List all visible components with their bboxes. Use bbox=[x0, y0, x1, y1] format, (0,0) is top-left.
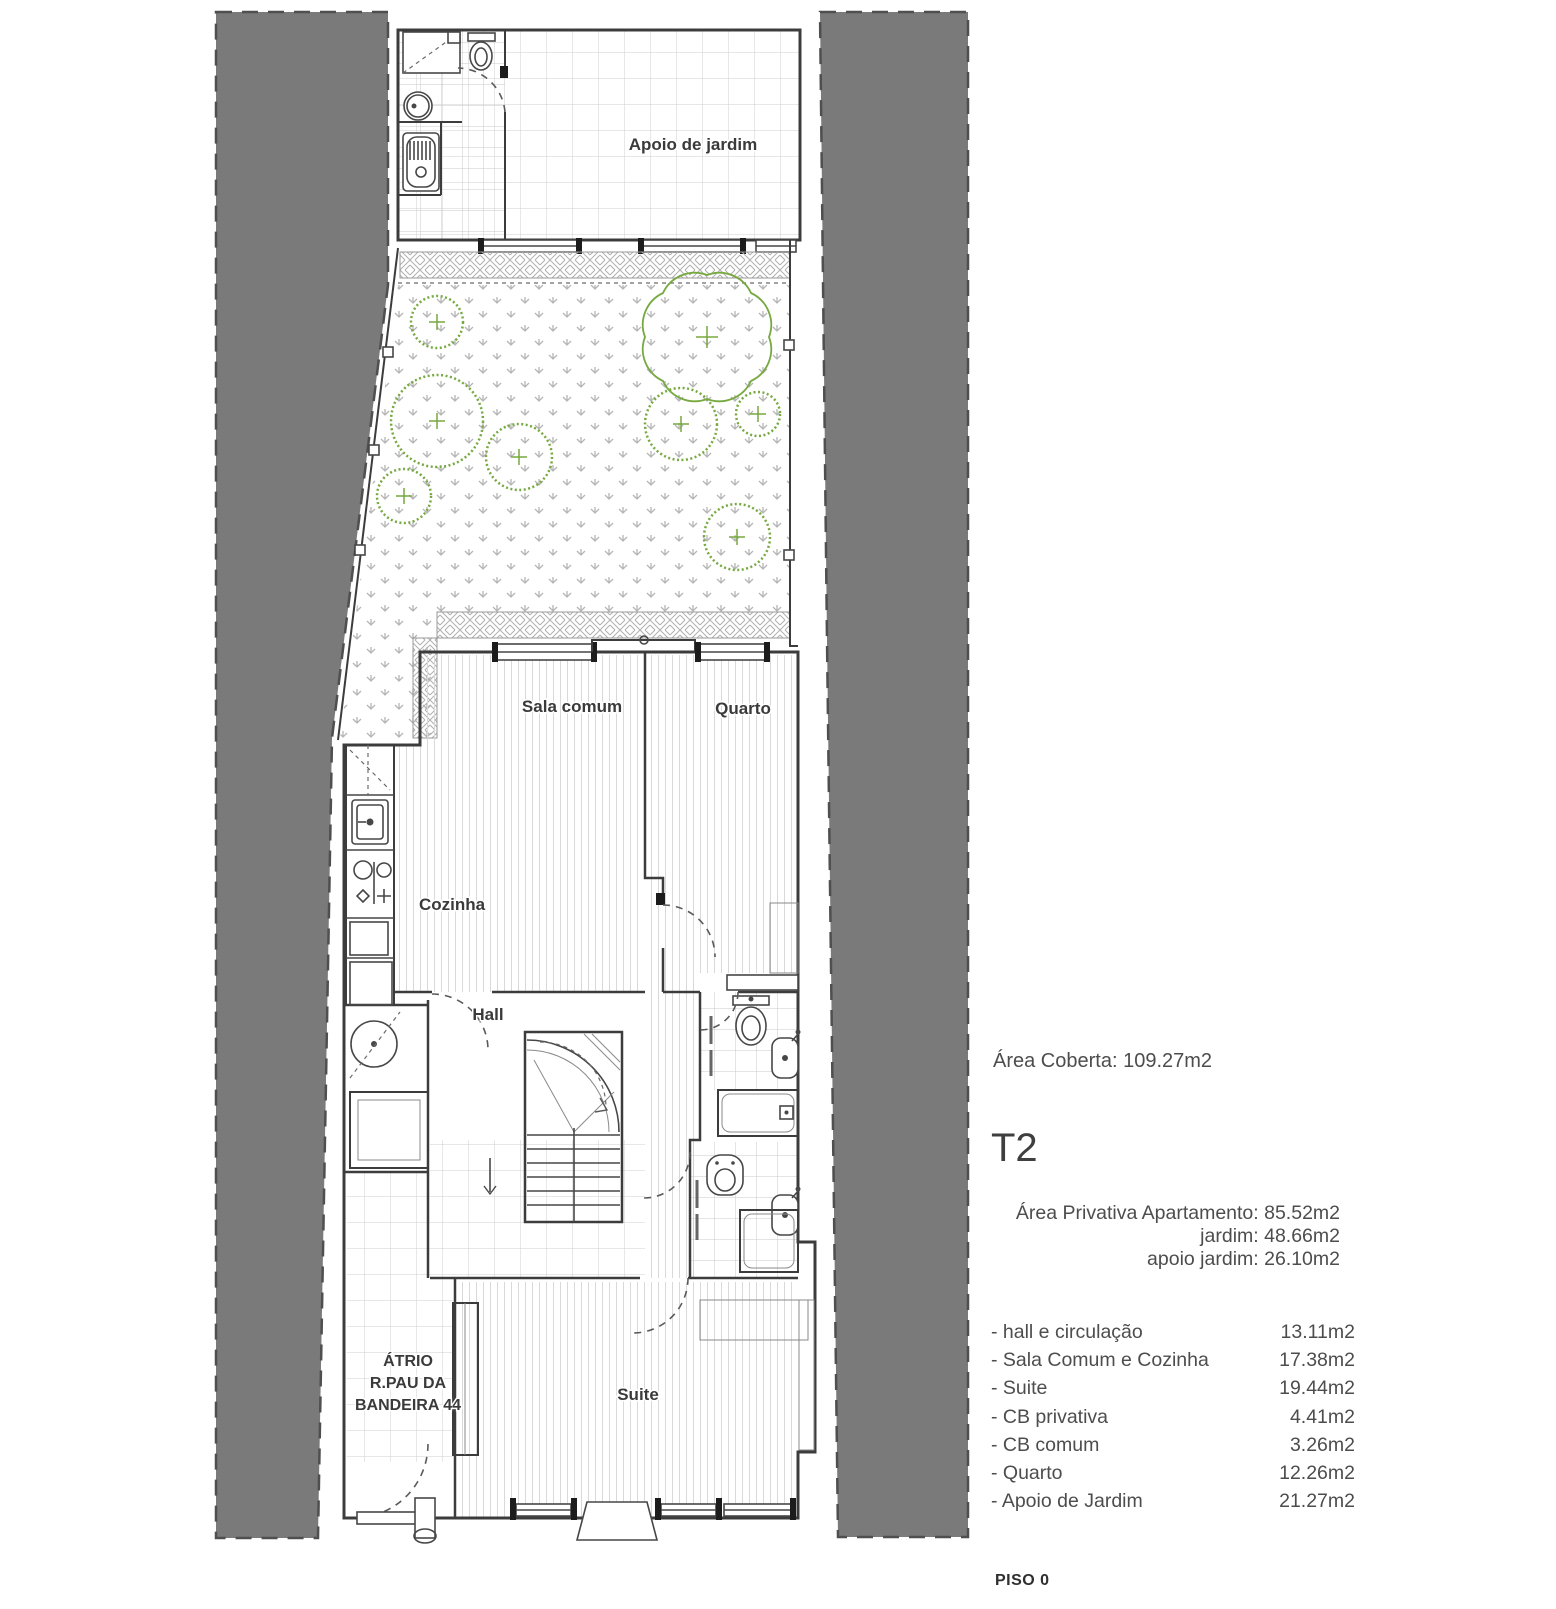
label-sala-comum: Sala comum bbox=[522, 697, 622, 716]
room-area-row: - Apoio de Jardim 21.27m2 bbox=[991, 1487, 1355, 1515]
room-area-row: - CB privativa 4.41m2 bbox=[991, 1403, 1355, 1431]
private-area-line: jardim: 48.66m2 bbox=[1016, 1225, 1340, 1248]
unit-type-title: T2 bbox=[991, 1128, 1038, 1168]
neighbor-building-right bbox=[820, 12, 968, 1537]
storage-block bbox=[350, 1092, 428, 1168]
floor-plan-page: Apoio de jardim Sala comum Quarto Cozinh… bbox=[0, 0, 1556, 1609]
sink-icon bbox=[352, 800, 388, 844]
room-area-row: - Quarto 12.26m2 bbox=[991, 1459, 1355, 1487]
washbasin-icon bbox=[404, 92, 432, 120]
toilet-icon bbox=[733, 996, 769, 1045]
room-label: - Apoio de Jardim bbox=[991, 1487, 1143, 1515]
room-label: - hall e circulação bbox=[991, 1318, 1143, 1346]
label-atrio: ÁTRIO bbox=[383, 1351, 433, 1370]
label-cozinha: Cozinha bbox=[419, 895, 486, 914]
bathtub-icon bbox=[403, 133, 439, 191]
shower-icon bbox=[403, 32, 460, 73]
entrance-pillar bbox=[414, 1498, 436, 1543]
room-area-row: - Suite 19.44m2 bbox=[991, 1374, 1355, 1402]
label-suite: Suite bbox=[617, 1385, 659, 1404]
label-apoio-de-jardim: Apoio de jardim bbox=[629, 135, 757, 154]
label-quarto: Quarto bbox=[715, 699, 771, 718]
room-label: - CB privativa bbox=[991, 1403, 1108, 1431]
room-area-value: 21.27m2 bbox=[1279, 1487, 1355, 1515]
room-label: - Sala Comum e Cozinha bbox=[991, 1346, 1209, 1374]
covered-area-text: Área Coberta: 109.27m2 bbox=[993, 1050, 1212, 1073]
window bbox=[492, 642, 597, 662]
label-atrio-number: BANDEIRA 44 bbox=[355, 1397, 461, 1414]
stove-icon bbox=[354, 861, 391, 904]
window bbox=[695, 642, 770, 662]
room-area-row: - CB comum 3.26m2 bbox=[991, 1431, 1355, 1459]
room-label: - Suite bbox=[991, 1374, 1047, 1402]
floor-title: PISO 0 bbox=[995, 1572, 1050, 1590]
room-area-list: - hall e circulação 13.11m2 - Sala Comum… bbox=[991, 1318, 1355, 1515]
room-label: - CB comum bbox=[991, 1431, 1099, 1459]
room-area-value: 12.26m2 bbox=[1279, 1459, 1355, 1487]
room-label: - Quarto bbox=[991, 1459, 1063, 1487]
bathtub-icon bbox=[718, 1090, 798, 1136]
room-area-row: - hall e circulação 13.11m2 bbox=[991, 1318, 1355, 1346]
kitchen-counter bbox=[346, 745, 394, 1005]
label-atrio-street: R.PAU DA bbox=[370, 1375, 447, 1392]
room-area-value: 13.11m2 bbox=[1281, 1318, 1355, 1346]
laundry-area bbox=[350, 1012, 400, 1078]
room-area-value: 3.26m2 bbox=[1290, 1431, 1355, 1459]
room-area-row: - Sala Comum e Cozinha 17.38m2 bbox=[991, 1346, 1355, 1374]
toilet-icon bbox=[707, 1155, 743, 1195]
private-area-line: Área Privativa Apartamento: 85.52m2 bbox=[1016, 1202, 1340, 1225]
entrance-step bbox=[577, 1502, 657, 1540]
private-areas-block: Área Privativa Apartamento: 85.52m2 jard… bbox=[1016, 1202, 1340, 1271]
private-area-line: apoio jardim: 26.10m2 bbox=[1016, 1248, 1340, 1271]
room-area-value: 17.38m2 bbox=[1279, 1346, 1355, 1374]
room-area-value: 19.44m2 bbox=[1279, 1374, 1355, 1402]
room-area-value: 4.41m2 bbox=[1290, 1403, 1355, 1431]
label-hall: Hall bbox=[472, 1005, 503, 1024]
